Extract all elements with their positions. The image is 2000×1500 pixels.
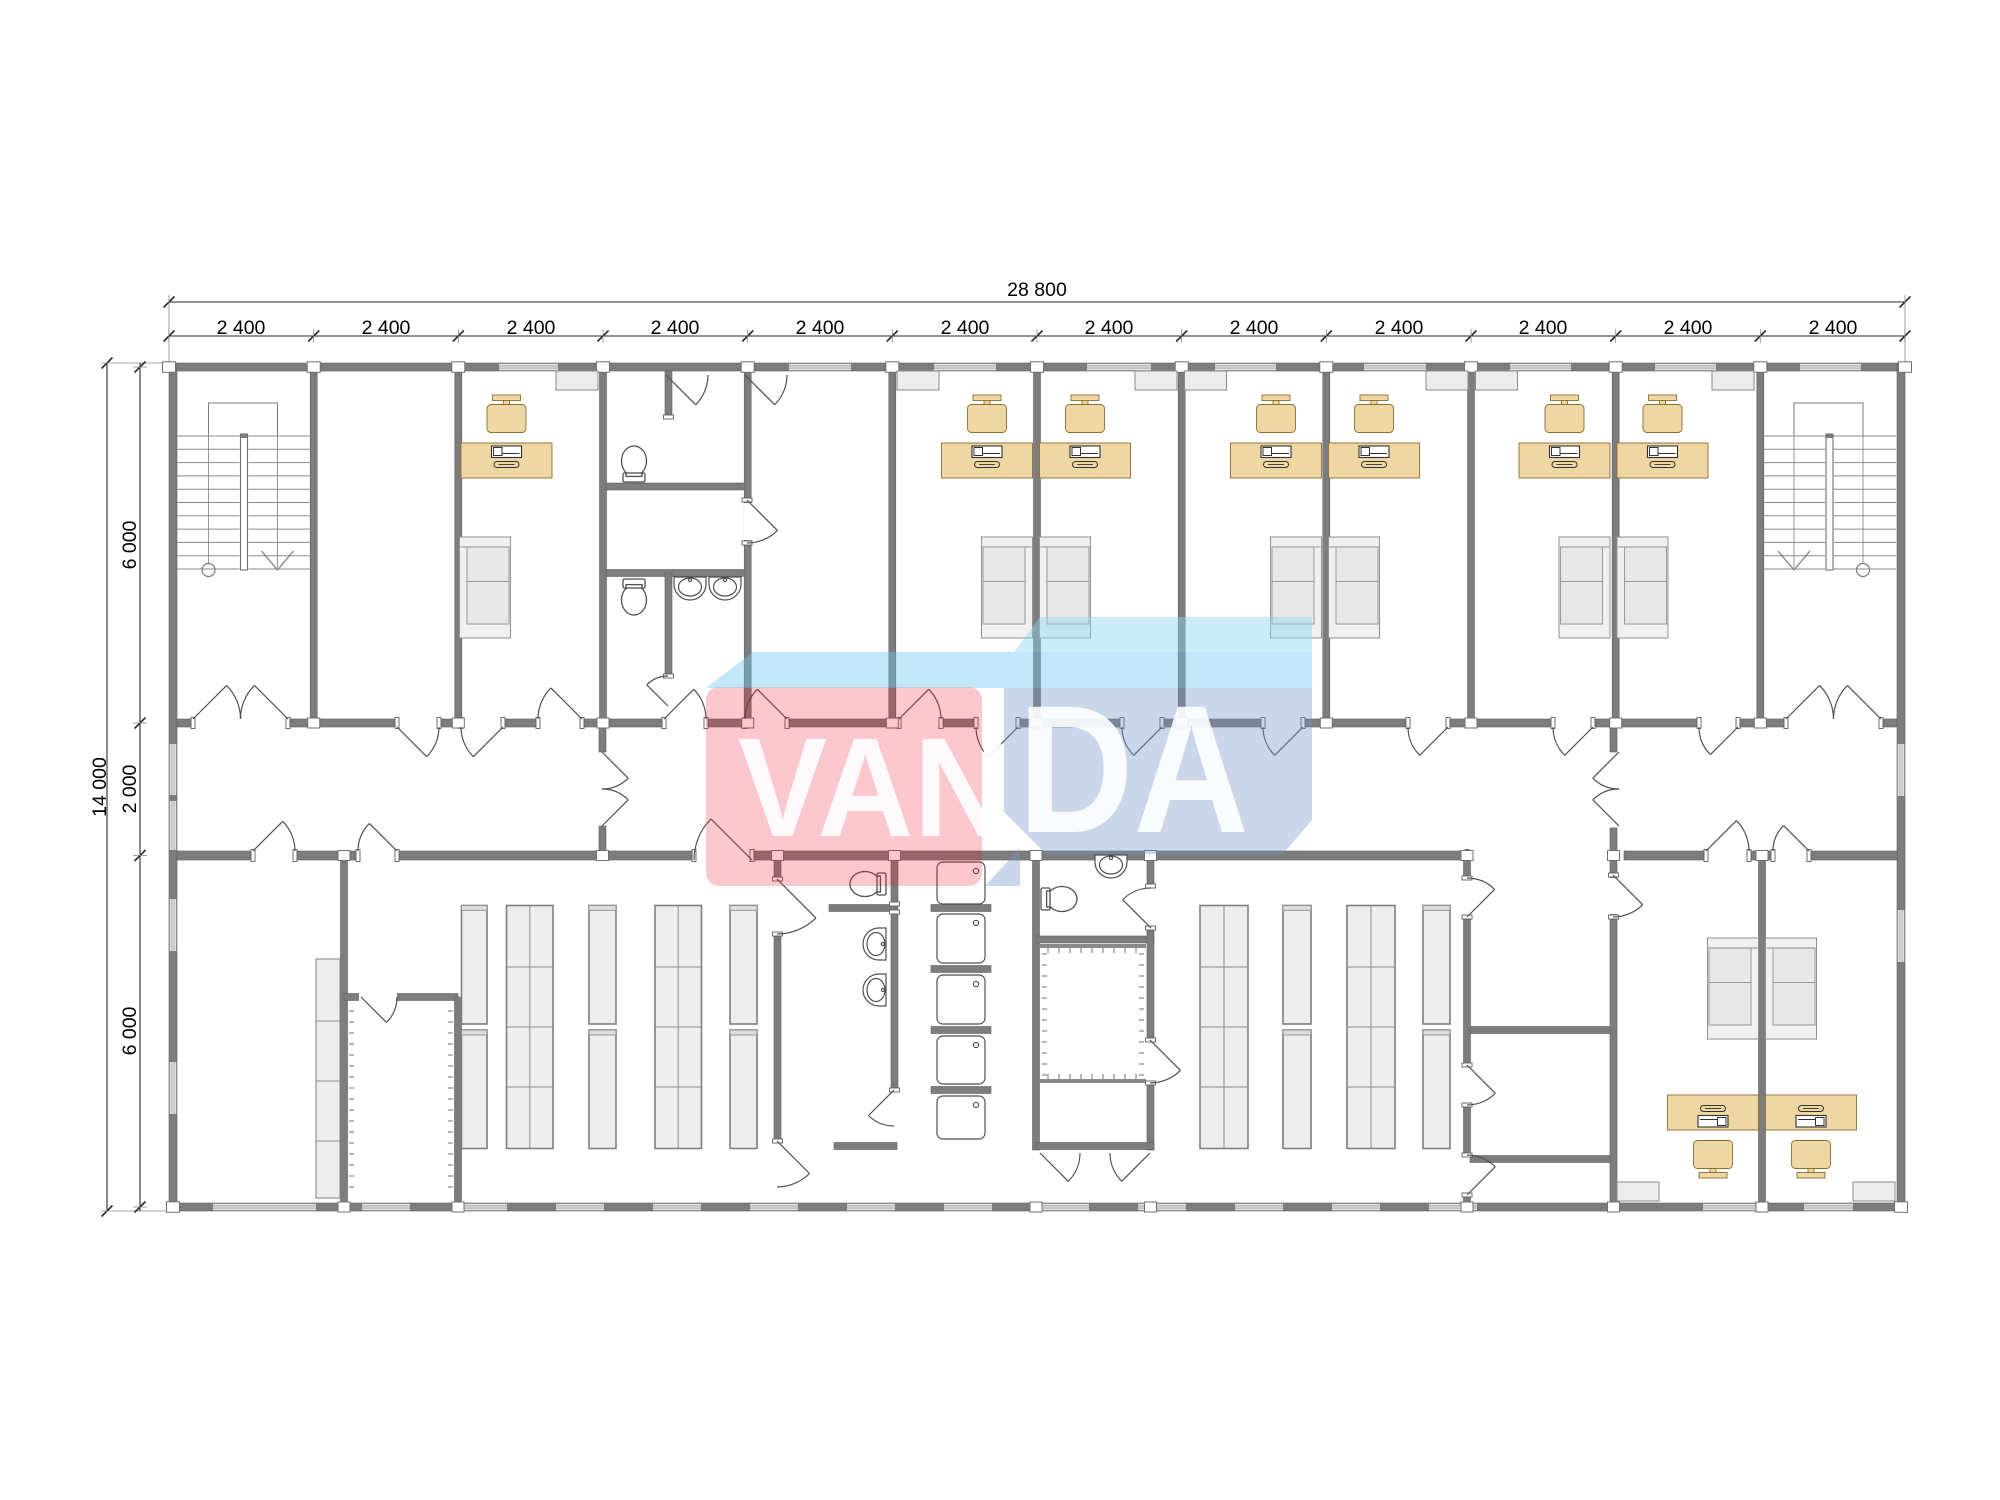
svg-text:2 400: 2 400 (1519, 317, 1568, 339)
svg-text:DA: DA (1018, 667, 1249, 871)
svg-text:14 000: 14 000 (89, 757, 111, 817)
svg-text:2 400: 2 400 (796, 317, 845, 339)
svg-text:2 400: 2 400 (1085, 317, 1134, 339)
svg-text:2 400: 2 400 (362, 317, 411, 339)
svg-text:2 400: 2 400 (1230, 317, 1279, 339)
svg-text:28 800: 28 800 (1007, 279, 1067, 301)
svg-text:2 400: 2 400 (217, 317, 266, 339)
svg-text:2 400: 2 400 (507, 317, 556, 339)
svg-text:6 000: 6 000 (119, 1006, 141, 1055)
svg-text:2 400: 2 400 (1664, 317, 1713, 339)
svg-text:6 000: 6 000 (119, 520, 141, 569)
svg-text:VAN: VAN (738, 708, 1010, 866)
svg-text:2 400: 2 400 (1375, 317, 1424, 339)
svg-text:2 000: 2 000 (119, 764, 141, 813)
svg-text:2 400: 2 400 (1809, 317, 1858, 339)
svg-text:2 400: 2 400 (651, 317, 700, 339)
svg-text:2 400: 2 400 (941, 317, 990, 339)
